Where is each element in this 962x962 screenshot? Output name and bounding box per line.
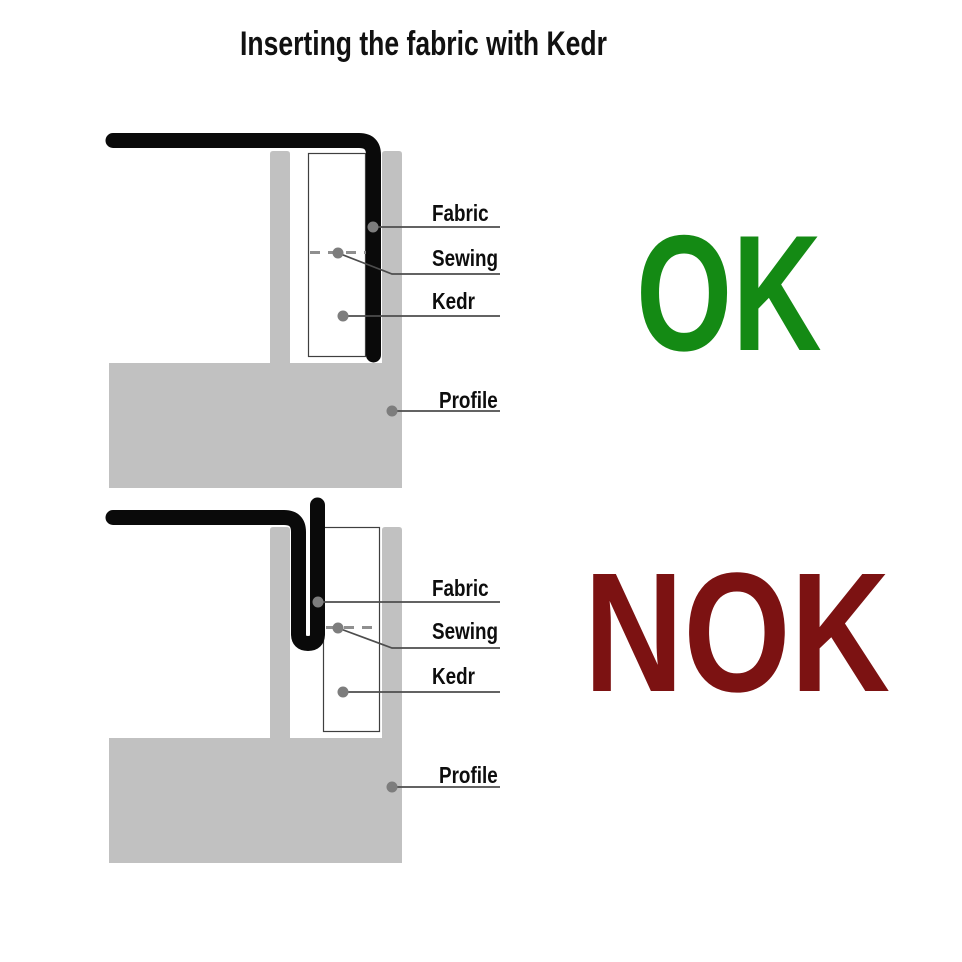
diagram-canvas xyxy=(0,0,962,962)
label-kedr-nok: Kedr xyxy=(432,665,475,688)
profile-left-wall xyxy=(270,151,290,367)
fabric-marker-dot xyxy=(368,222,379,233)
sewing-marker-dot xyxy=(333,248,344,259)
profile-marker-dot xyxy=(387,782,398,793)
label-sewing-nok: Sewing xyxy=(432,620,498,643)
label-profile-ok: Profile xyxy=(439,389,498,412)
profile-marker-dot xyxy=(387,406,398,417)
ok-diagram xyxy=(109,141,500,489)
label-kedr-ok: Kedr xyxy=(432,290,475,313)
verdict-ok: OK xyxy=(636,211,822,376)
label-profile-nok: Profile xyxy=(439,764,498,787)
kedr-block xyxy=(324,528,380,732)
page-title: Inserting the fabric with Kedr xyxy=(240,27,607,61)
label-fabric-nok: Fabric xyxy=(432,577,489,600)
sewing-marker-dot xyxy=(333,623,344,634)
label-sewing-ok: Sewing xyxy=(432,247,498,270)
kedr-marker-dot xyxy=(338,311,349,322)
fabric-marker-dot xyxy=(313,597,324,608)
label-fabric-ok: Fabric xyxy=(432,202,489,225)
instruction-poster: Inserting the fabric with Kedr Fabric Se… xyxy=(0,0,962,962)
kedr-marker-dot xyxy=(338,687,349,698)
profile-left-wall xyxy=(270,527,290,742)
verdict-nok: NOK xyxy=(584,548,890,718)
